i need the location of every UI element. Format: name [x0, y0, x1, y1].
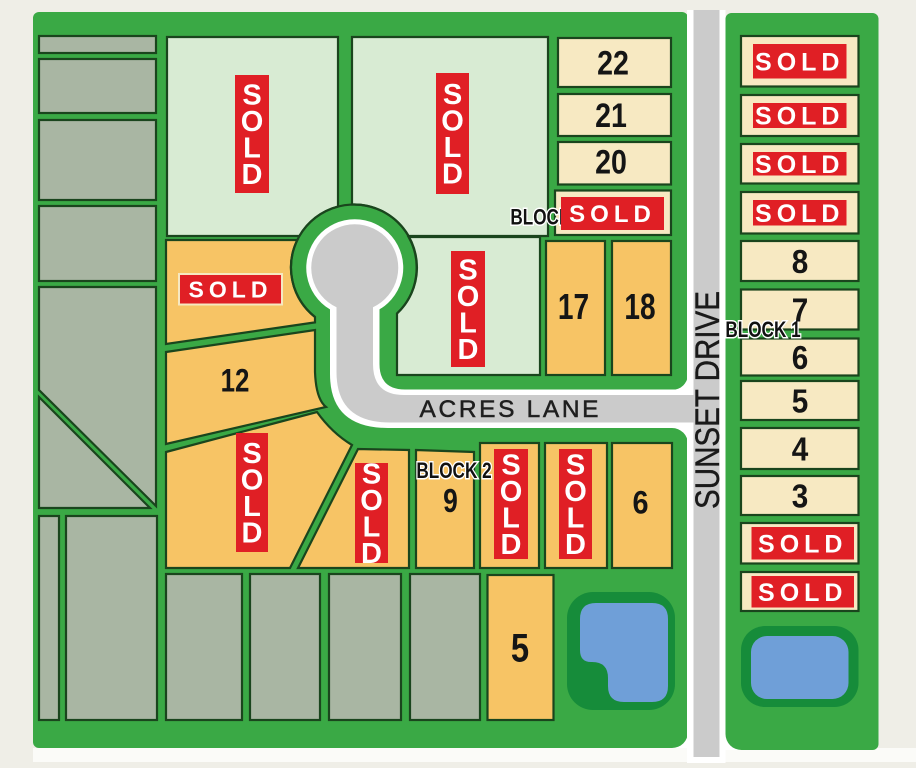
svg-text:SOLD: SOLD	[564, 450, 587, 562]
svg-text:SOLD: SOLD	[241, 438, 264, 550]
svg-text:6: 6	[792, 339, 809, 376]
svg-text:6: 6	[632, 485, 648, 521]
svg-text:SOLD: SOLD	[441, 79, 464, 191]
svg-text:SOLD: SOLD	[457, 255, 480, 367]
svg-text:BLOCK 2: BLOCK 2	[416, 459, 491, 484]
svg-text:ACRES LANE: ACRES LANE	[420, 396, 602, 423]
svg-text:12: 12	[221, 364, 250, 399]
svg-text:SOLD: SOLD	[569, 201, 656, 228]
svg-text:SOLD: SOLD	[500, 450, 523, 562]
svg-text:SOLD: SOLD	[755, 151, 844, 179]
svg-text:SOLD: SOLD	[360, 459, 383, 571]
svg-text:7: 7	[792, 292, 809, 329]
svg-text:21: 21	[595, 97, 627, 135]
svg-text:SOLD: SOLD	[758, 530, 847, 558]
svg-text:17: 17	[558, 287, 589, 327]
svg-text:5: 5	[511, 625, 529, 670]
svg-text:SOLD: SOLD	[755, 48, 844, 76]
svg-text:20: 20	[595, 143, 627, 181]
svg-text:3: 3	[792, 478, 809, 515]
svg-text:SOLD: SOLD	[189, 277, 273, 303]
svg-text:9: 9	[443, 483, 458, 519]
svg-text:SOLD: SOLD	[755, 103, 844, 131]
svg-text:SUNSET DRIVE: SUNSET DRIVE	[689, 291, 727, 509]
svg-text:4: 4	[792, 431, 809, 468]
svg-text:BLOCK 1: BLOCK 1	[725, 318, 800, 343]
svg-text:22: 22	[597, 44, 629, 82]
svg-text:SOLD: SOLD	[755, 200, 844, 228]
svg-text:SOLD: SOLD	[758, 579, 847, 607]
svg-text:SOLD: SOLD	[241, 80, 264, 192]
svg-text:5: 5	[792, 383, 809, 420]
svg-text:18: 18	[624, 287, 655, 327]
svg-text:8: 8	[792, 243, 809, 280]
